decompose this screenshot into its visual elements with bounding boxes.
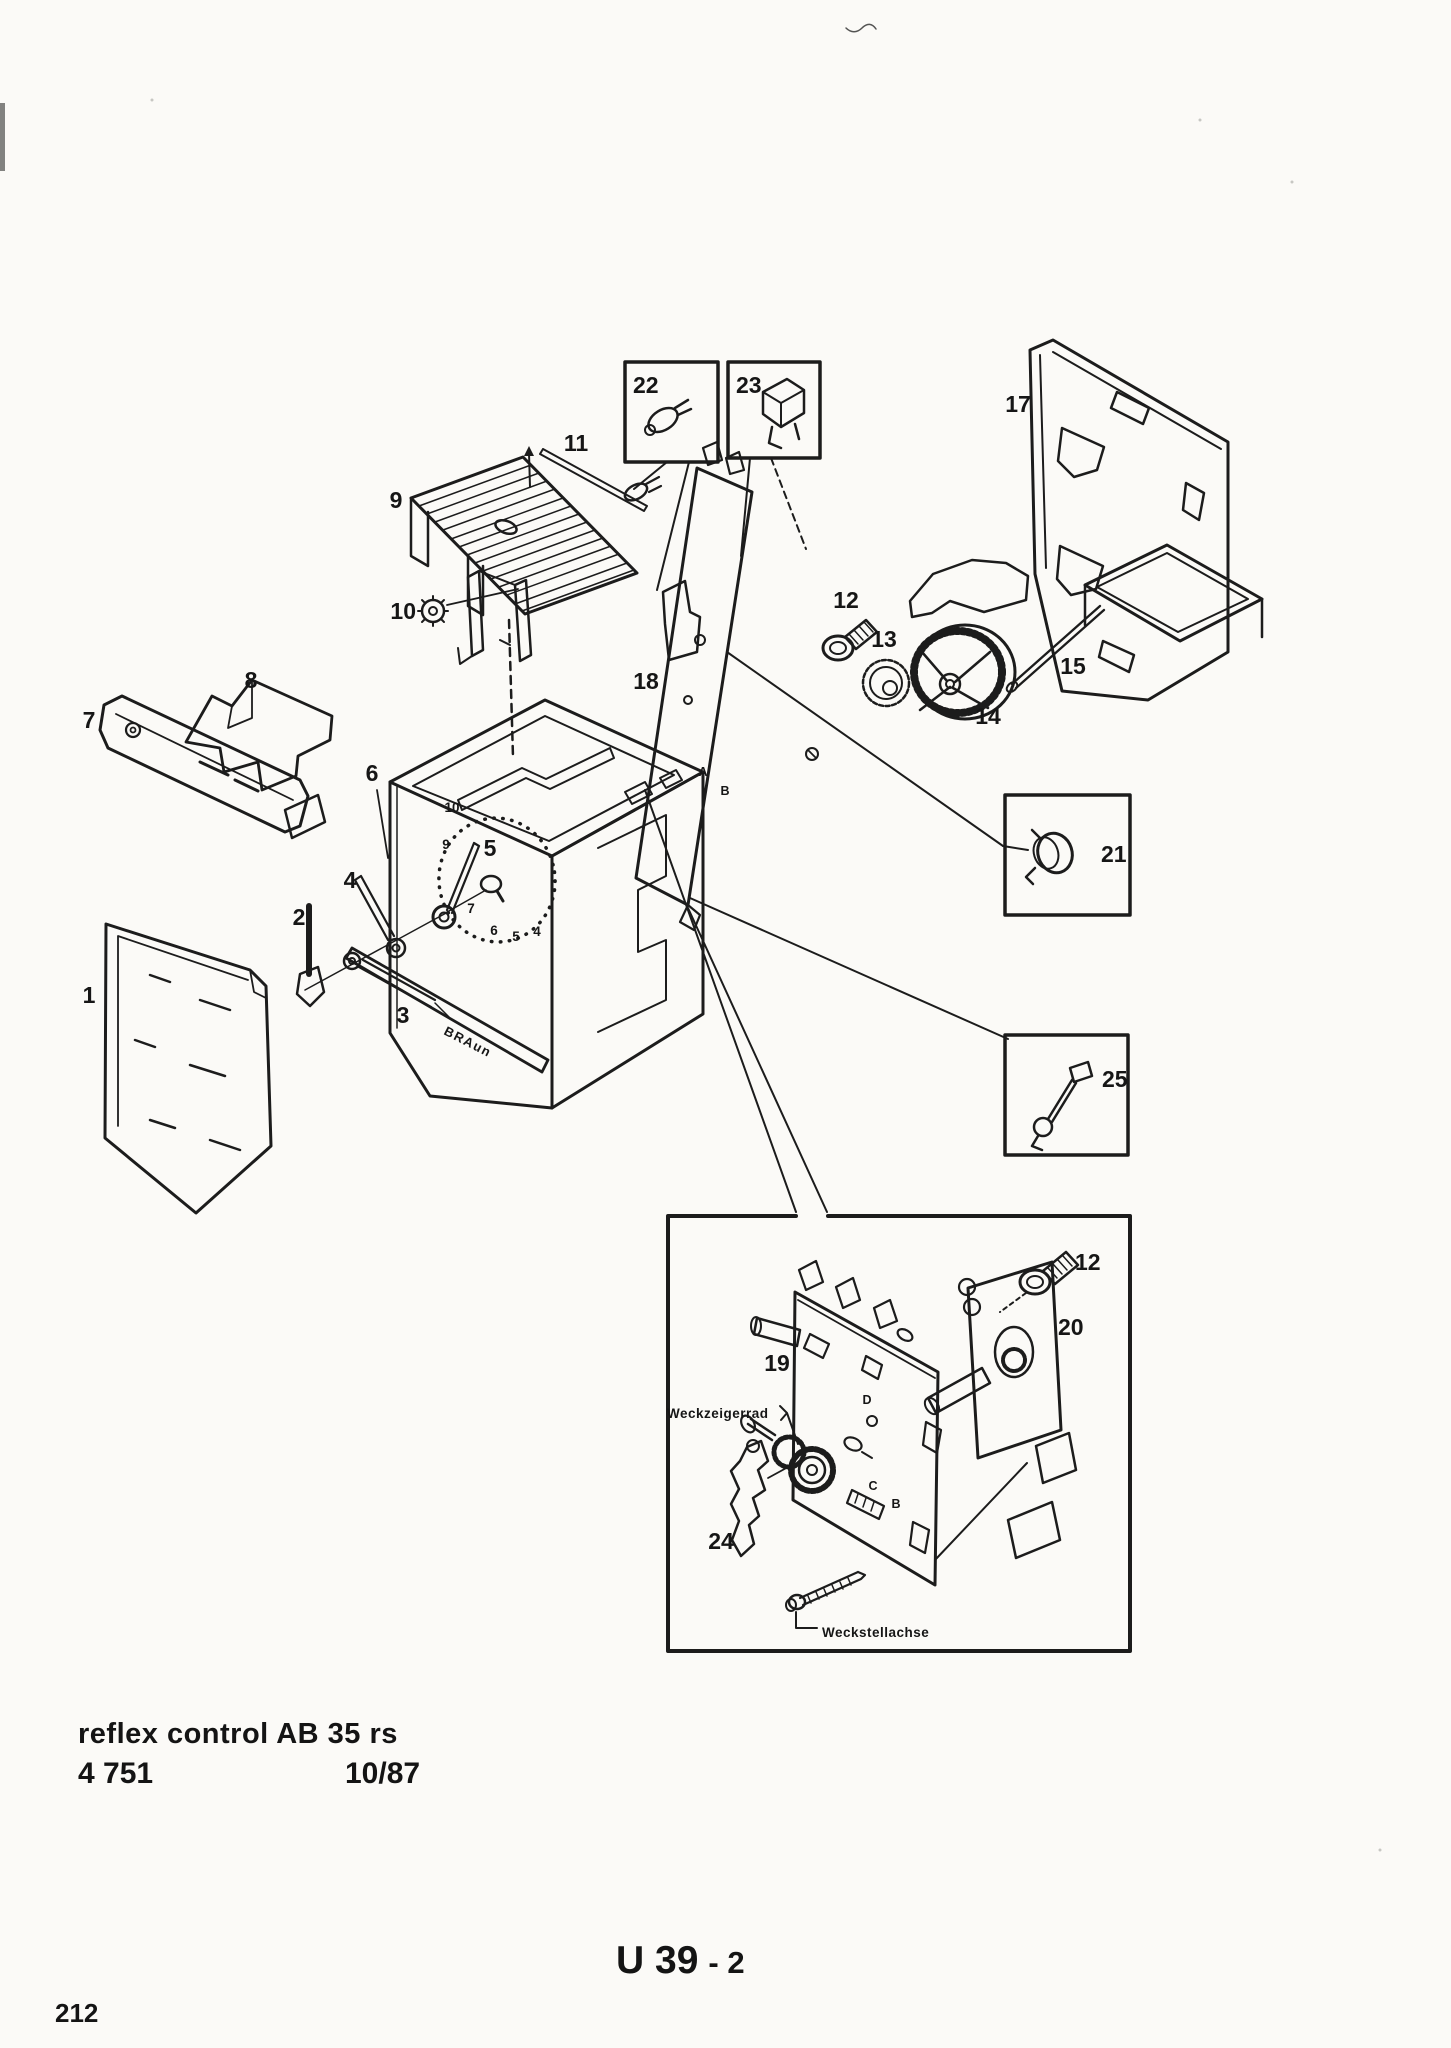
label-weckzeigerrad: Weckzeigerrad xyxy=(667,1406,769,1421)
sheet-code-main: U 39 xyxy=(616,1939,698,1982)
lamp xyxy=(622,477,661,504)
part-label-9: 9 xyxy=(390,487,403,513)
part-label-1: 1 xyxy=(83,982,96,1008)
part-1-front-cover xyxy=(105,924,271,1213)
part-5-knob xyxy=(449,876,503,911)
part-label-23: 23 xyxy=(736,372,762,398)
part-label-20: 20 xyxy=(1058,1314,1084,1340)
callout-letter-b: B xyxy=(720,784,729,798)
part-label-4: 4 xyxy=(344,867,357,893)
axis-line xyxy=(305,912,448,990)
part-12-knob xyxy=(823,620,877,660)
part-label-6: 6 xyxy=(366,760,379,786)
part-label-17: 17 xyxy=(1005,391,1031,417)
sheet-code-suffix: - 2 xyxy=(708,1945,744,1980)
part-20-switch-block xyxy=(922,1262,1076,1560)
part-24-lever xyxy=(731,1440,790,1556)
inset-box-21: 21 xyxy=(1003,795,1130,915)
part-6-housing xyxy=(346,700,703,1108)
part-label-21: 21 xyxy=(1101,841,1127,867)
part-label-10: 10 xyxy=(390,598,416,624)
leader-lines xyxy=(645,652,1008,1212)
scan-noise xyxy=(0,24,1382,1851)
part-9-grille xyxy=(411,457,637,615)
part-label-5: 5 xyxy=(484,835,497,861)
part-label-12: 12 xyxy=(833,587,859,613)
inset-box-23: 23 xyxy=(728,362,820,556)
callout-letter-a: A xyxy=(698,765,707,779)
part-label-25: 25 xyxy=(1102,1066,1128,1092)
part-label-15: 15 xyxy=(1060,653,1086,679)
part-label-19: 19 xyxy=(764,1350,790,1376)
part-12b-knob xyxy=(1000,1252,1078,1312)
part-15-bracket xyxy=(910,545,1262,694)
dial-number-10: 10 xyxy=(444,800,459,815)
dial-number-9: 9 xyxy=(442,837,450,852)
part-7-front-bar xyxy=(100,696,325,838)
sheet-code: U 39- 2 xyxy=(616,1941,745,1980)
callout-letter-b2: B xyxy=(891,1497,900,1511)
part-label-14: 14 xyxy=(975,703,1001,729)
page-number: 212 xyxy=(55,2000,98,2026)
product-title: reflex control AB 35 rs xyxy=(78,1720,398,1749)
inset-box-25: 25 xyxy=(1005,1035,1128,1155)
part-19-alarm-plate xyxy=(751,1261,941,1585)
part-label-8: 8 xyxy=(245,667,258,693)
dial-number-4: 4 xyxy=(533,924,541,939)
part-label-24: 24 xyxy=(708,1528,734,1554)
part-label-3: 3 xyxy=(397,1002,410,1028)
part-label-2: 2 xyxy=(293,904,306,930)
callout-letter-d: D xyxy=(862,1393,871,1407)
setting-screw xyxy=(786,1572,865,1628)
date-code: 10/87 xyxy=(345,1759,420,1789)
part-label-7: 7 xyxy=(83,707,96,733)
dial-number-6: 6 xyxy=(490,923,498,938)
part-17-back-panel xyxy=(1030,340,1228,700)
part-label-11: 11 xyxy=(564,430,589,456)
label-weckstellachse: Weckstellachse xyxy=(822,1625,929,1640)
detail-box: Weckzeigerrad Weckstellachse D C B 12 20… xyxy=(667,1216,1130,1651)
callout-letter-c: C xyxy=(868,1479,877,1493)
part-13-gear xyxy=(863,660,909,706)
type-number: 4 751 xyxy=(78,1759,153,1789)
part-label-12b: 12 xyxy=(1075,1249,1101,1275)
part-label-13: 13 xyxy=(871,626,897,652)
part-label-22: 22 xyxy=(633,372,659,398)
part-18-movement-plate: A B xyxy=(636,442,818,930)
gear-cluster xyxy=(738,1413,884,1519)
part-label-18: 18 xyxy=(633,668,659,694)
dial-number-5: 5 xyxy=(512,929,520,944)
scanned-parts-page: 10 9 7 6 5 4 BRAun xyxy=(0,0,1451,2048)
dial-number-7: 7 xyxy=(467,901,475,916)
inset-box-22: 22 xyxy=(625,362,718,590)
